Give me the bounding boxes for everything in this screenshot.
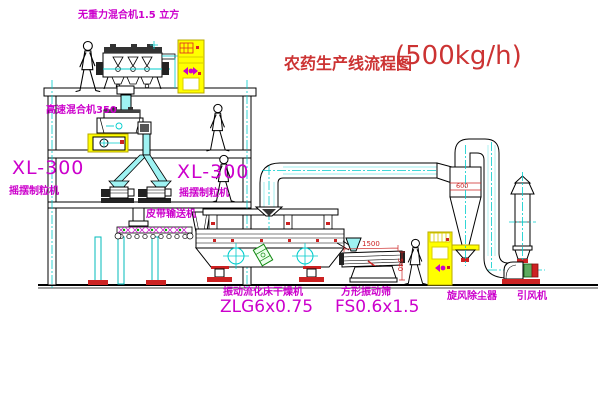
label-screen-model: FS0.6x1.5: [335, 299, 419, 316]
fluid-bed-dryer: [196, 209, 352, 282]
control-cabinet-screen: [428, 232, 452, 285]
label-fan: 引风机: [517, 292, 547, 302]
zero-gravity-mixer: [96, 41, 178, 112]
label-high-speed-mixer: 高速混合机350: [46, 106, 117, 116]
granulator-right: [138, 187, 171, 203]
ground-line: [38, 284, 598, 288]
control-cabinet-top: [178, 40, 204, 93]
label-belt-conveyor: 皮带输送机: [146, 210, 196, 220]
granulator-left: [101, 187, 134, 203]
dim-screen-length: 1500: [362, 241, 380, 248]
label-granulator-left-model: XL-300: [12, 159, 84, 178]
induced-draft-fan: [502, 262, 540, 284]
dim-cyclone-diameter: 600: [456, 183, 468, 190]
y-chute: [109, 155, 171, 189]
worker-second-floor: [207, 104, 229, 150]
cyclone-separator: [450, 139, 545, 278]
label-zero-gravity-mixer: 无重力混合机1.5 立方: [78, 11, 179, 21]
worker-ground: [405, 239, 426, 284]
dim-screen-height: 540: [396, 258, 403, 271]
diagram-title: 农药生产线流程图: [284, 56, 412, 72]
diagram-title-capacity: (500kg/h): [395, 43, 522, 69]
label-dryer-model: ZLG6x0.75: [220, 299, 313, 316]
process-flow-diagram: 农药生产线流程图 (500kg/h) 无重力混合机1.5 立方 高速混合机350…: [0, 0, 600, 403]
label-granulator-left-name: 摇摆制粒机: [9, 187, 59, 197]
label-cyclone: 旋风除尘器: [447, 292, 497, 302]
label-granulator-right-name: 摇摆制粒机: [179, 189, 229, 199]
label-granulator-right-model: XL-300: [177, 163, 249, 182]
exhaust-stack: [509, 172, 536, 264]
